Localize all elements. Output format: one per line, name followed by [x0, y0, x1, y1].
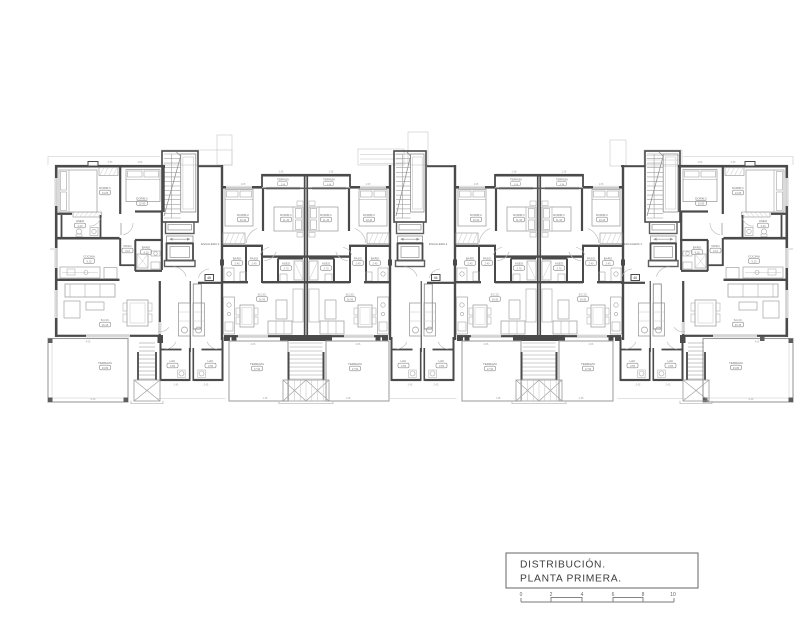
svg-text:LAV.: LAV.: [629, 359, 635, 363]
svg-text:11.40: 11.40: [323, 218, 330, 222]
svg-text:DORM 2: DORM 2: [596, 213, 608, 217]
svg-text:LAV.: LAV.: [169, 359, 175, 363]
svg-text:11.40: 11.40: [283, 218, 290, 222]
svg-text:DORM 1: DORM 1: [513, 213, 525, 217]
svg-text:2.70: 2.70: [323, 266, 329, 270]
svg-text:1.05: 1.05: [474, 183, 479, 186]
svg-text:2.45: 2.45: [234, 261, 240, 265]
svg-text:LAV.: LAV.: [207, 359, 213, 363]
svg-text:13.05: 13.05: [102, 191, 109, 195]
svg-text:6.40: 6.40: [749, 398, 754, 401]
svg-text:2.45: 2.45: [372, 261, 378, 265]
svg-text:TERRAZA: TERRAZA: [483, 362, 497, 366]
svg-text:ASEO: ASEO: [322, 262, 331, 266]
svg-text:2.82: 2.82: [138, 161, 143, 164]
svg-text:PASO: PASO: [354, 257, 363, 261]
svg-text:TERRAZA: TERRAZA: [581, 362, 595, 366]
svg-text:46: 46: [207, 276, 211, 280]
svg-text:BAÑO: BAÑO: [371, 256, 380, 261]
svg-text:26.15: 26.15: [735, 323, 742, 327]
svg-text:2.42: 2.42: [636, 384, 641, 387]
svg-text:3.55: 3.55: [668, 364, 674, 368]
svg-text:2.40: 2.40: [484, 261, 490, 265]
svg-text:2.45: 2.45: [467, 261, 473, 265]
svg-text:10.40: 10.40: [240, 218, 247, 222]
svg-text:ASEO: ASEO: [282, 262, 291, 266]
svg-text:4: 4: [581, 592, 584, 598]
svg-text:10.60: 10.60: [139, 201, 146, 205]
svg-text:17.90: 17.90: [352, 367, 359, 371]
svg-text:2.70: 2.70: [556, 266, 562, 270]
svg-text:8: 8: [642, 592, 645, 598]
svg-text:ESCALERA 3: ESCALERA 3: [201, 242, 220, 246]
svg-text:1.48: 1.48: [579, 397, 584, 400]
svg-text:6.40: 6.40: [91, 398, 96, 401]
svg-text:3.10: 3.10: [713, 249, 719, 253]
svg-text:TERRAZA: TERRAZA: [98, 361, 112, 365]
svg-text:DORM 1: DORM 1: [99, 186, 111, 190]
svg-text:DORM 1: DORM 1: [553, 213, 565, 217]
svg-text:DORM 2: DORM 2: [363, 213, 375, 217]
svg-text:10.40: 10.40: [366, 218, 373, 222]
svg-text:2.38: 2.38: [329, 171, 334, 174]
svg-text:2.70: 2.70: [516, 266, 522, 270]
svg-text:17.90: 17.90: [254, 367, 261, 371]
svg-text:S.C.D.: S.C.D.: [579, 293, 588, 297]
svg-text:3.40: 3.40: [760, 224, 766, 228]
svg-text:2.42: 2.42: [434, 384, 439, 387]
svg-text:3.55: 3.55: [208, 364, 214, 368]
svg-text:COCINA: COCINA: [83, 255, 95, 259]
svg-text:0: 0: [520, 592, 523, 598]
svg-text:1.05: 1.05: [599, 183, 604, 186]
svg-text:DORM 2: DORM 2: [695, 197, 707, 201]
svg-text:2.42: 2.42: [666, 384, 671, 387]
svg-text:DORM 1: DORM 1: [732, 186, 744, 190]
svg-text:PASO: PASO: [123, 244, 132, 248]
svg-text:46: 46: [434, 276, 438, 280]
svg-text:3.55: 3.55: [630, 364, 636, 368]
svg-text:10: 10: [670, 592, 676, 598]
svg-text:ASEO: ASEO: [759, 219, 768, 223]
svg-text:2: 2: [550, 592, 553, 598]
svg-text:3.40: 3.40: [77, 224, 83, 228]
svg-text:9.15: 9.15: [86, 259, 92, 263]
svg-text:TERRAZA: TERRAZA: [510, 179, 522, 182]
svg-text:ASEO: ASEO: [515, 262, 524, 266]
svg-text:26.95: 26.95: [347, 297, 354, 301]
svg-text:S.C.D.: S.C.D.: [101, 318, 110, 322]
svg-text:DISTRIBUCIÓN.: DISTRIBUCIÓN.: [520, 558, 606, 571]
svg-text:DORM 2: DORM 2: [237, 213, 249, 217]
svg-text:DORM 2: DORM 2: [470, 213, 482, 217]
svg-text:PASO: PASO: [711, 244, 720, 248]
svg-text:2.45: 2.45: [605, 261, 611, 265]
svg-text:9.15: 9.15: [751, 259, 757, 263]
svg-text:2.38: 2.38: [512, 171, 517, 174]
svg-text:PASO: PASO: [250, 257, 259, 261]
svg-text:3.55: 3.55: [439, 364, 445, 368]
svg-text:3.35: 3.35: [731, 161, 736, 164]
svg-text:10.40: 10.40: [599, 218, 606, 222]
svg-text:TERRAZA: TERRAZA: [277, 179, 289, 182]
svg-text:2.82: 2.82: [698, 161, 703, 164]
svg-text:DORM 1: DORM 1: [320, 213, 332, 217]
svg-text:ASEO: ASEO: [555, 262, 564, 266]
svg-text:TERRAZA: TERRAZA: [556, 179, 568, 182]
svg-text:2.70: 2.70: [283, 266, 289, 270]
svg-text:S.C.D.: S.C.D.: [346, 293, 355, 297]
svg-text:4.06: 4.06: [484, 343, 489, 346]
svg-text:BAÑO: BAÑO: [466, 256, 475, 261]
svg-text:COCINA: COCINA: [748, 255, 760, 259]
svg-text:2.42: 2.42: [408, 384, 413, 387]
svg-text:10.60: 10.60: [698, 201, 705, 205]
svg-text:4.05: 4.05: [755, 341, 760, 344]
svg-text:S.C.D.: S.C.D.: [734, 318, 743, 322]
svg-text:2.42: 2.42: [174, 384, 179, 387]
svg-text:4.05: 4.05: [86, 341, 91, 344]
svg-text:DORM 1: DORM 1: [280, 213, 292, 217]
svg-text:3.35: 3.35: [108, 161, 113, 164]
svg-text:33.80: 33.80: [733, 366, 740, 370]
svg-text:BAÑO: BAÑO: [604, 256, 613, 261]
svg-text:LAV.: LAV.: [438, 359, 444, 363]
svg-text:4.06: 4.06: [589, 343, 594, 346]
svg-text:ESCALERA 1: ESCALERA 1: [624, 242, 643, 246]
svg-text:17.90: 17.90: [585, 367, 592, 371]
svg-text:2.38: 2.38: [562, 171, 567, 174]
svg-text:PLANTA PRIMERA.: PLANTA PRIMERA.: [520, 574, 622, 585]
svg-text:BAÑO: BAÑO: [142, 245, 151, 250]
svg-text:4.06: 4.06: [251, 343, 256, 346]
svg-text:33.80: 33.80: [102, 366, 109, 370]
svg-text:TERRAZA: TERRAZA: [250, 362, 264, 366]
svg-text:TERRAZA: TERRAZA: [348, 362, 362, 366]
svg-text:DORM 2: DORM 2: [136, 197, 148, 201]
svg-text:1.05: 1.05: [241, 183, 246, 186]
svg-text:26.15: 26.15: [102, 323, 109, 327]
svg-text:2.40: 2.40: [588, 261, 594, 265]
svg-text:6: 6: [612, 592, 615, 598]
svg-text:PASO: PASO: [483, 257, 492, 261]
svg-text:10.40: 10.40: [473, 218, 480, 222]
svg-text:2.40: 2.40: [355, 261, 361, 265]
svg-text:3.55: 3.55: [170, 364, 176, 368]
svg-text:26.95: 26.95: [492, 297, 499, 301]
svg-text:2.38: 2.38: [279, 171, 284, 174]
svg-text:46: 46: [633, 276, 637, 280]
svg-text:TERRAZA: TERRAZA: [729, 361, 743, 365]
svg-text:TERRAZA: TERRAZA: [323, 179, 335, 182]
svg-text:3.55: 3.55: [401, 364, 407, 368]
svg-text:BAÑO: BAÑO: [693, 245, 702, 250]
svg-text:26.95: 26.95: [580, 297, 587, 301]
svg-text:ASEO: ASEO: [76, 219, 85, 223]
svg-text:S.C.D.: S.C.D.: [491, 293, 500, 297]
svg-text:4.06: 4.06: [356, 343, 361, 346]
svg-text:17.90: 17.90: [487, 367, 494, 371]
svg-text:1.48: 1.48: [496, 397, 501, 400]
svg-text:2.42: 2.42: [204, 384, 209, 387]
svg-text:13.05: 13.05: [735, 191, 742, 195]
svg-text:1.48: 1.48: [263, 397, 268, 400]
svg-text:1.48: 1.48: [346, 397, 351, 400]
svg-text:S.C.D.: S.C.D.: [258, 293, 267, 297]
svg-text:11.40: 11.40: [516, 218, 523, 222]
svg-text:26.95: 26.95: [259, 297, 266, 301]
svg-text:LAV.: LAV.: [667, 359, 673, 363]
svg-text:1.05: 1.05: [366, 183, 371, 186]
svg-text:PASO: PASO: [587, 257, 596, 261]
svg-text:3.10: 3.10: [125, 249, 131, 253]
svg-text:BAÑO: BAÑO: [233, 256, 242, 261]
svg-text:LAV.: LAV.: [400, 359, 406, 363]
svg-text:ESCALERA 2: ESCALERA 2: [429, 242, 448, 246]
svg-text:11.40: 11.40: [556, 218, 563, 222]
svg-text:2.40: 2.40: [251, 261, 257, 265]
